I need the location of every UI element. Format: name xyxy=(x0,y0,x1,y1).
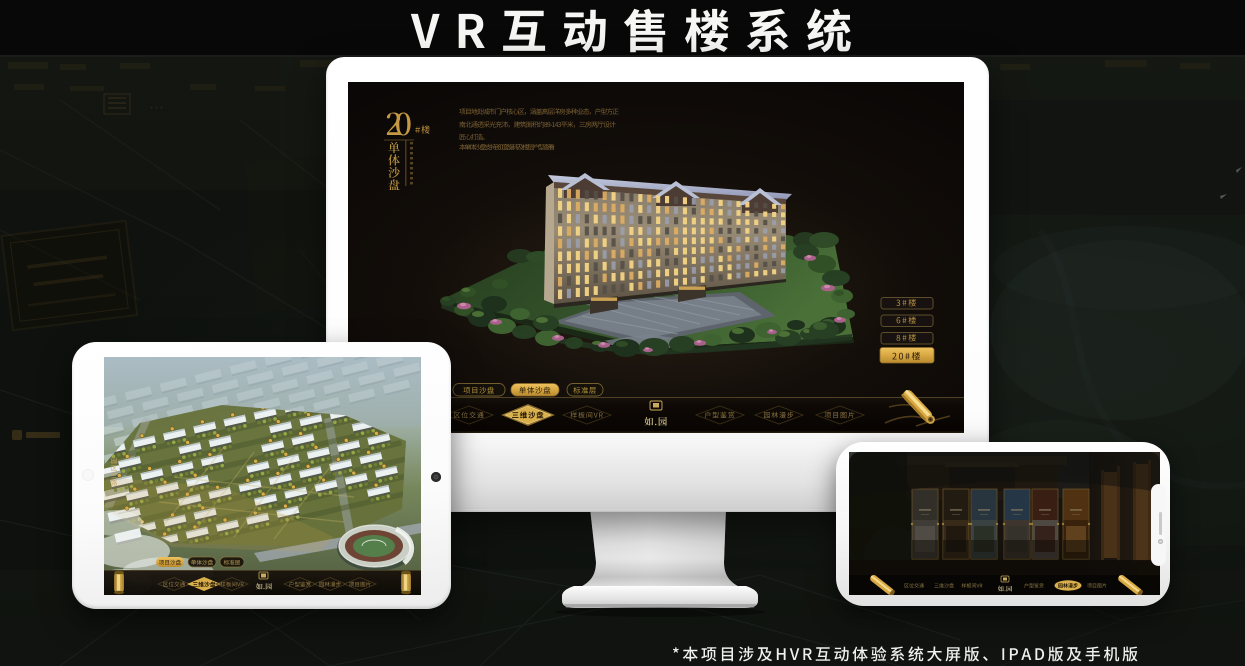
svg-text:▪ ▪ ▪: ▪ ▪ ▪ xyxy=(150,103,163,112)
